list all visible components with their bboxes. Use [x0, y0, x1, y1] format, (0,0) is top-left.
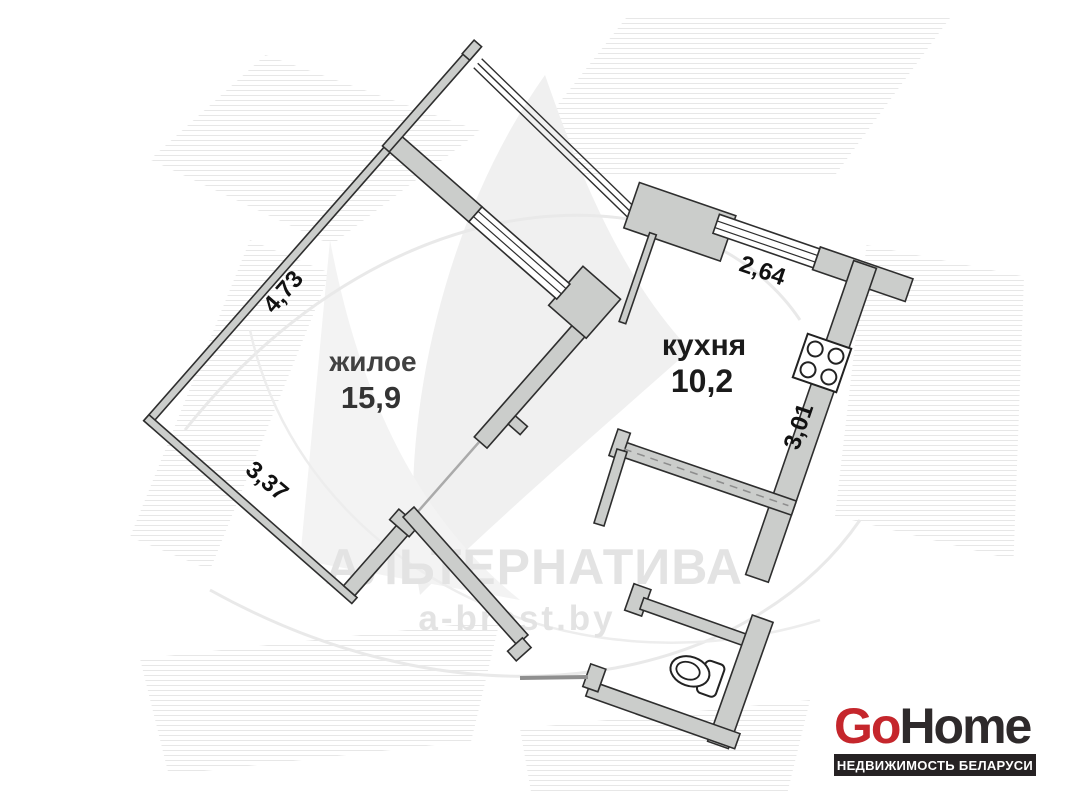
living-room-door [409, 442, 479, 522]
glazing-line [466, 68, 653, 235]
gohome-logo-text: GoHome [834, 700, 1036, 752]
dimension-living-bottom-left: 3,37 [240, 456, 293, 507]
wall-segment [640, 598, 751, 647]
toilet-icon [665, 649, 725, 698]
wall-segment [388, 136, 482, 222]
dimension-living-top-left: 4,73 [258, 266, 309, 319]
window [469, 207, 570, 299]
floor-plan: жилое 15,9 кухня 10,2 4,73 3,37 2,64 3,0… [0, 0, 1068, 800]
wall-segment [594, 449, 627, 526]
living-room-area: 15,9 [341, 380, 401, 415]
kitchen-area: 10,2 [671, 363, 733, 399]
floorplan-page: АЛЬТЕРНАТИВА a-brest.by [0, 0, 1068, 800]
hallway-walls [403, 449, 627, 661]
wall-segment [619, 233, 656, 324]
gohome-logo: GoHome НЕДВИЖИМОСТЬ БЕЛАРУСИ [834, 700, 1036, 776]
balcony-wall-stub [462, 40, 481, 60]
door-post [508, 638, 532, 661]
glazing-line [470, 63, 657, 230]
logo-go: Go [834, 698, 899, 754]
bathroom-walls [579, 570, 778, 751]
window-line [473, 217, 561, 294]
entrance-door [520, 677, 588, 678]
living-room-label: жилое [328, 346, 416, 377]
wall-segment [403, 507, 528, 645]
balcony-wall [382, 44, 479, 152]
wall-segment [144, 415, 357, 604]
window-line [478, 211, 566, 288]
logo-tagline: НЕДВИЖИМОСТЬ БЕЛАРУСИ [834, 754, 1036, 776]
living-room-window [469, 207, 570, 299]
kitchen-label: кухня [662, 329, 746, 362]
logo-home: Home [899, 698, 1030, 754]
